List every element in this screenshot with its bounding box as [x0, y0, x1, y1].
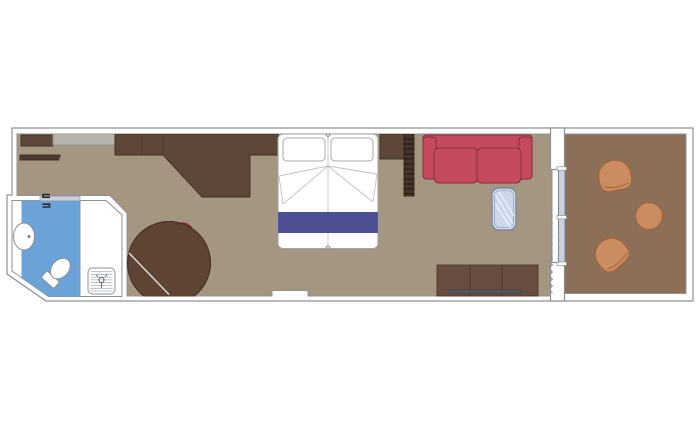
washbasin [14, 223, 35, 250]
balcony-wall-lower [551, 263, 565, 302]
balcony-round-table [636, 203, 663, 230]
balcony-wall-upper [551, 128, 565, 170]
luggage-shelf [53, 134, 115, 145]
tv-dresser [437, 265, 538, 296]
balcony-sliding-door [557, 167, 567, 266]
red-sofa [423, 135, 532, 183]
double-bed [278, 134, 378, 249]
pullman-ladder [404, 134, 414, 196]
dresser-handle [448, 290, 522, 293]
bed-runner [278, 212, 378, 233]
floor-plan [0, 0, 700, 433]
floor-plan-canvas [0, 0, 700, 433]
glass-coffee-table [492, 188, 516, 230]
pillow-right [331, 138, 373, 161]
sofa-cushion-right [477, 148, 521, 183]
round-dining-table [128, 222, 211, 305]
entry-closet [21, 135, 53, 146]
shower-drain [88, 268, 115, 294]
balcony-floor [565, 134, 687, 294]
entry-door-leaf [20, 155, 60, 160]
sofa-cushion-left [434, 148, 478, 183]
bathroom [12, 195, 122, 297]
pillow-left [283, 138, 325, 161]
